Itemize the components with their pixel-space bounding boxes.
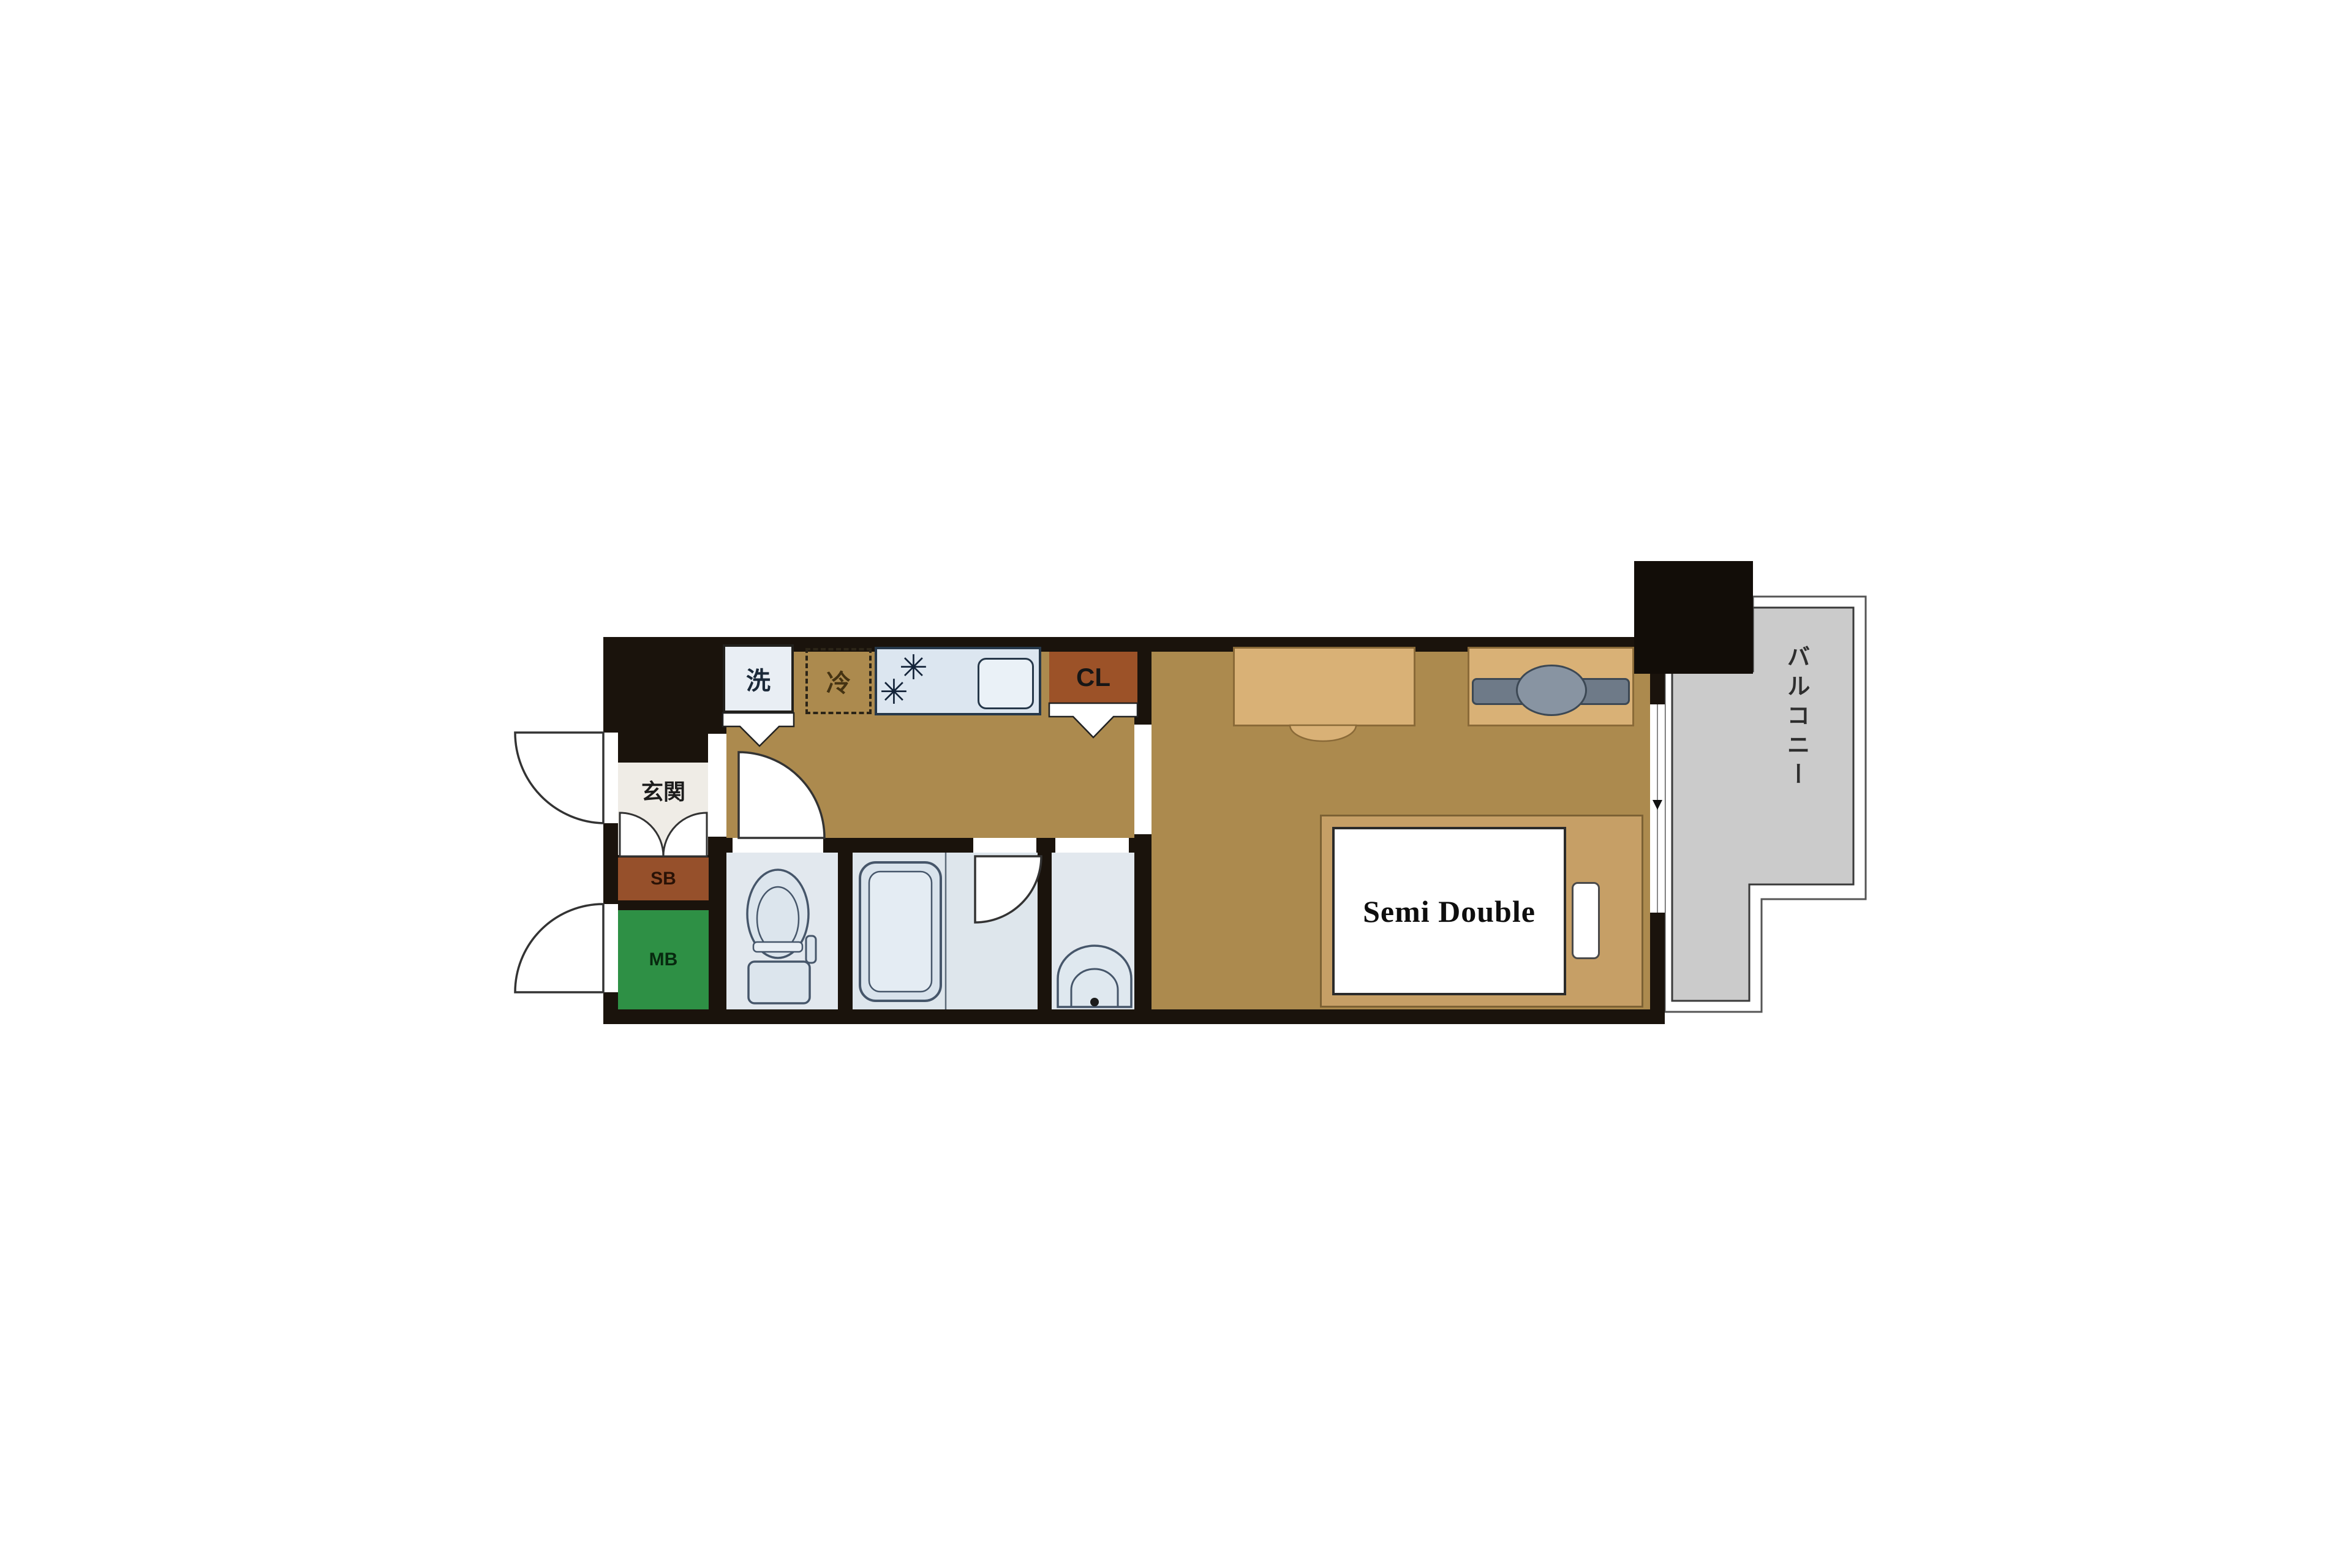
hall-door-swing-arc bbox=[739, 752, 824, 838]
toilet-lever-icon bbox=[806, 936, 816, 963]
bathtub-inner bbox=[869, 872, 932, 992]
floor-plan-canvas: バルコニー SB MB 玄関 洗 冷 ✳ ✳ CL Semi Double bbox=[0, 0, 2352, 1568]
toilet-tank-icon bbox=[748, 962, 810, 1003]
meter-box-door-swing-arc bbox=[515, 904, 603, 992]
washbasin-drain-icon bbox=[1090, 998, 1099, 1006]
closet-door-notch-icon bbox=[1049, 703, 1137, 737]
entry-door-swing-arc bbox=[515, 733, 603, 823]
washer-door-notch-icon bbox=[723, 713, 794, 746]
bathroom-door-swing-arc bbox=[975, 856, 1041, 922]
fixtures-overlay bbox=[0, 0, 2352, 1568]
genkan-door-left-arc bbox=[620, 813, 663, 856]
genkan-door-right-arc bbox=[663, 813, 707, 856]
window-center-marker-icon bbox=[1653, 800, 1662, 810]
toilet-seat-line bbox=[753, 942, 802, 952]
desk-chair-notch bbox=[1290, 725, 1356, 741]
